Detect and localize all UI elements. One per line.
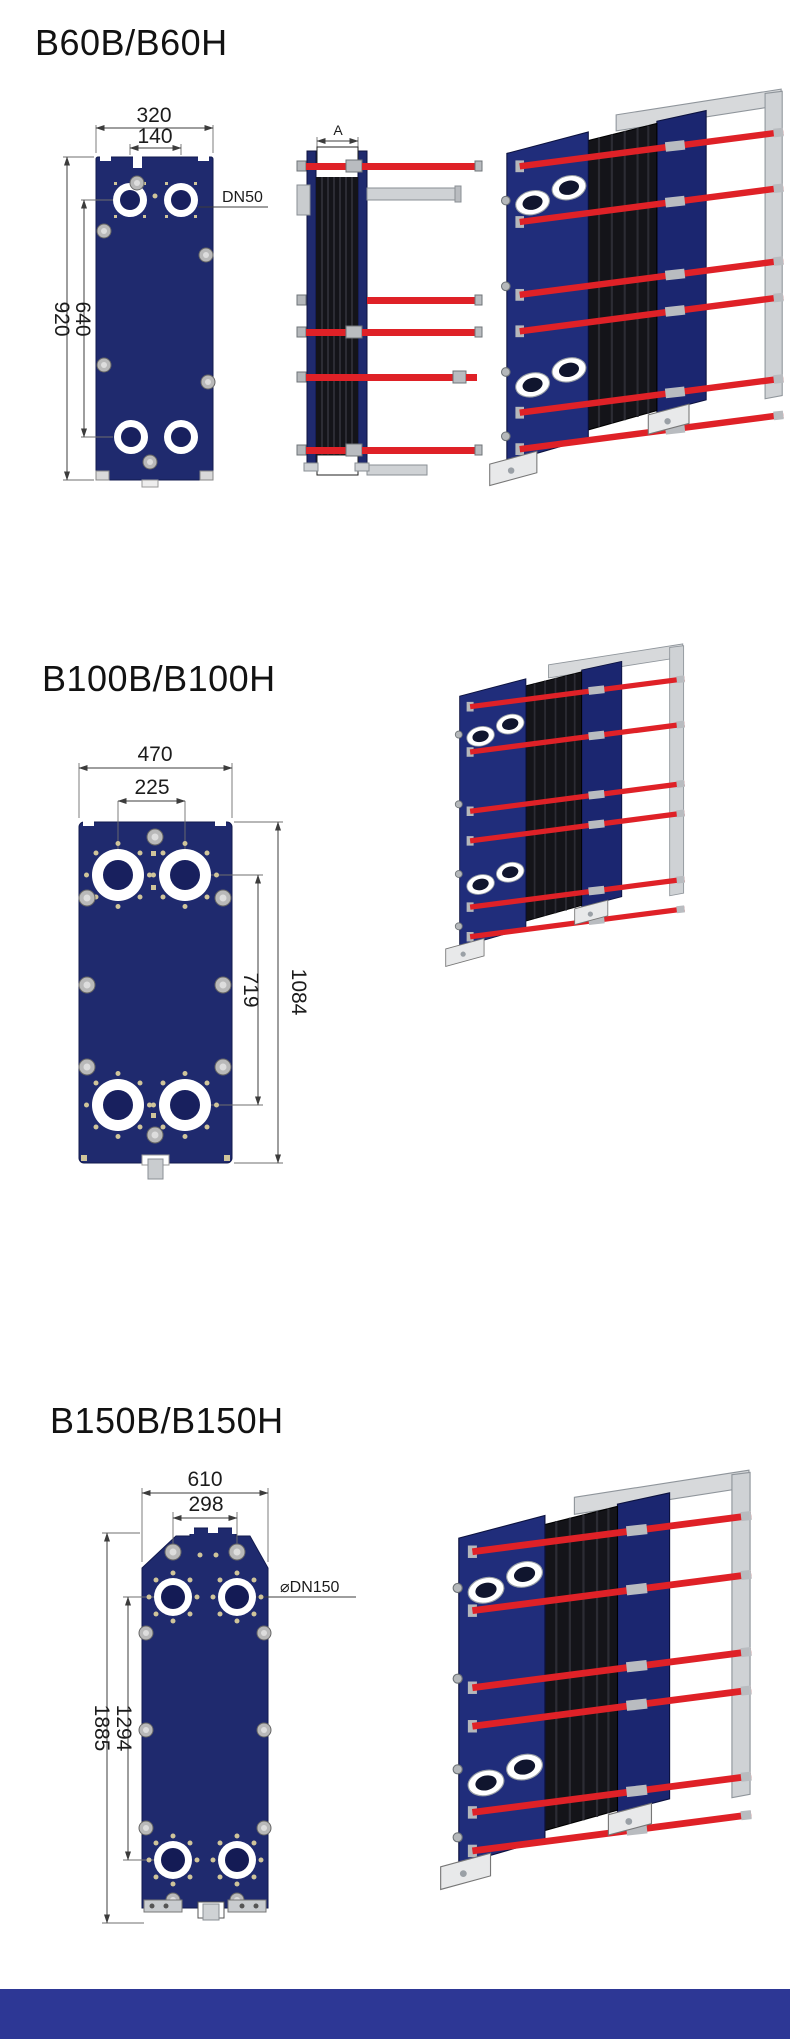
page: B60B/B60H 320 140 920 [0, 0, 790, 2039]
dim-width-outer: 470 [137, 743, 172, 766]
dim-width-inner: 225 [134, 776, 169, 799]
b60-isometric-view [468, 72, 790, 522]
dim-height-inner: 1294 [112, 1705, 135, 1752]
section-title-b60: B60B/B60H [35, 22, 228, 64]
dim-pack-length: A [333, 122, 343, 138]
dim-height-outer: 920 [50, 301, 73, 336]
b100-front-view-drawing: 470 225 1084 719 [35, 715, 320, 1180]
port-size-label: DN50 [222, 189, 263, 206]
section-title-b150: B150B/B150H [50, 1400, 284, 1442]
dim-width-outer: 610 [187, 1468, 222, 1491]
dimension-A: A [317, 122, 358, 147]
dim-width-inner: 140 [137, 125, 172, 148]
feet [144, 1900, 266, 1920]
dim-height-outer: 1885 [90, 1705, 113, 1752]
dimension-140: 140 [130, 125, 181, 155]
b60-side-view-drawing: A [295, 85, 490, 485]
dim-height-inner: 719 [239, 972, 262, 1007]
b150-front-view-drawing: 610 298 1885 1294 ⌀DN150 [60, 1440, 400, 1960]
port-size-callout: ⌀DN150 [256, 1579, 356, 1597]
b60-front-view-drawing: 320 140 920 640 [38, 95, 303, 495]
section-title-b100: B100B/B100H [42, 658, 276, 700]
b150-isometric-view [418, 1452, 758, 1928]
dim-height-inner: 640 [71, 301, 94, 336]
footer-color-band [0, 1989, 790, 2039]
port-size-label: ⌀DN150 [280, 1579, 340, 1596]
dim-width-outer: 320 [136, 104, 171, 127]
dim-height-outer: 1084 [287, 969, 310, 1016]
b100-isometric-view [428, 630, 690, 996]
plate-pack [316, 177, 358, 455]
dim-width-inner: 298 [188, 1493, 223, 1516]
